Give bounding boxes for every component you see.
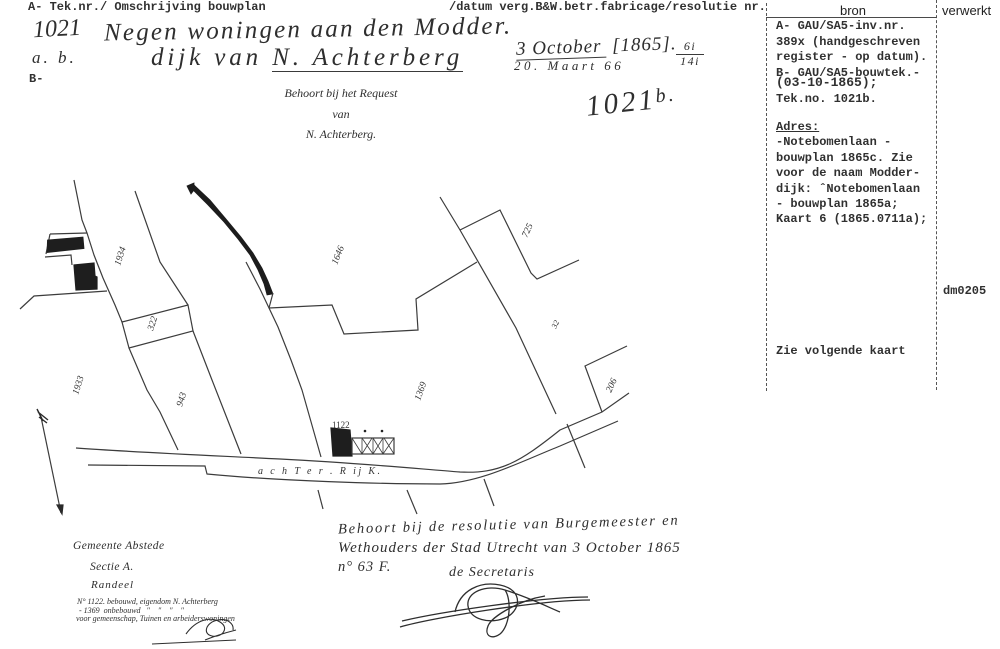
svg-text:206: 206 [605, 377, 620, 394]
svg-text:32: 32 [549, 319, 561, 331]
svg-text:a c h T e r . R ij K.: a c h T e r . R ij K. [258, 466, 382, 477]
svg-text:943: 943 [175, 391, 189, 408]
svg-text:1934: 1934 [113, 246, 128, 267]
svg-text:725: 725 [521, 222, 536, 239]
svg-text:1646: 1646 [331, 245, 347, 267]
svg-text:1933: 1933 [71, 375, 86, 396]
svg-text:1122: 1122 [332, 420, 350, 430]
svg-text:1369: 1369 [413, 381, 429, 403]
svg-text:322: 322 [146, 315, 160, 333]
